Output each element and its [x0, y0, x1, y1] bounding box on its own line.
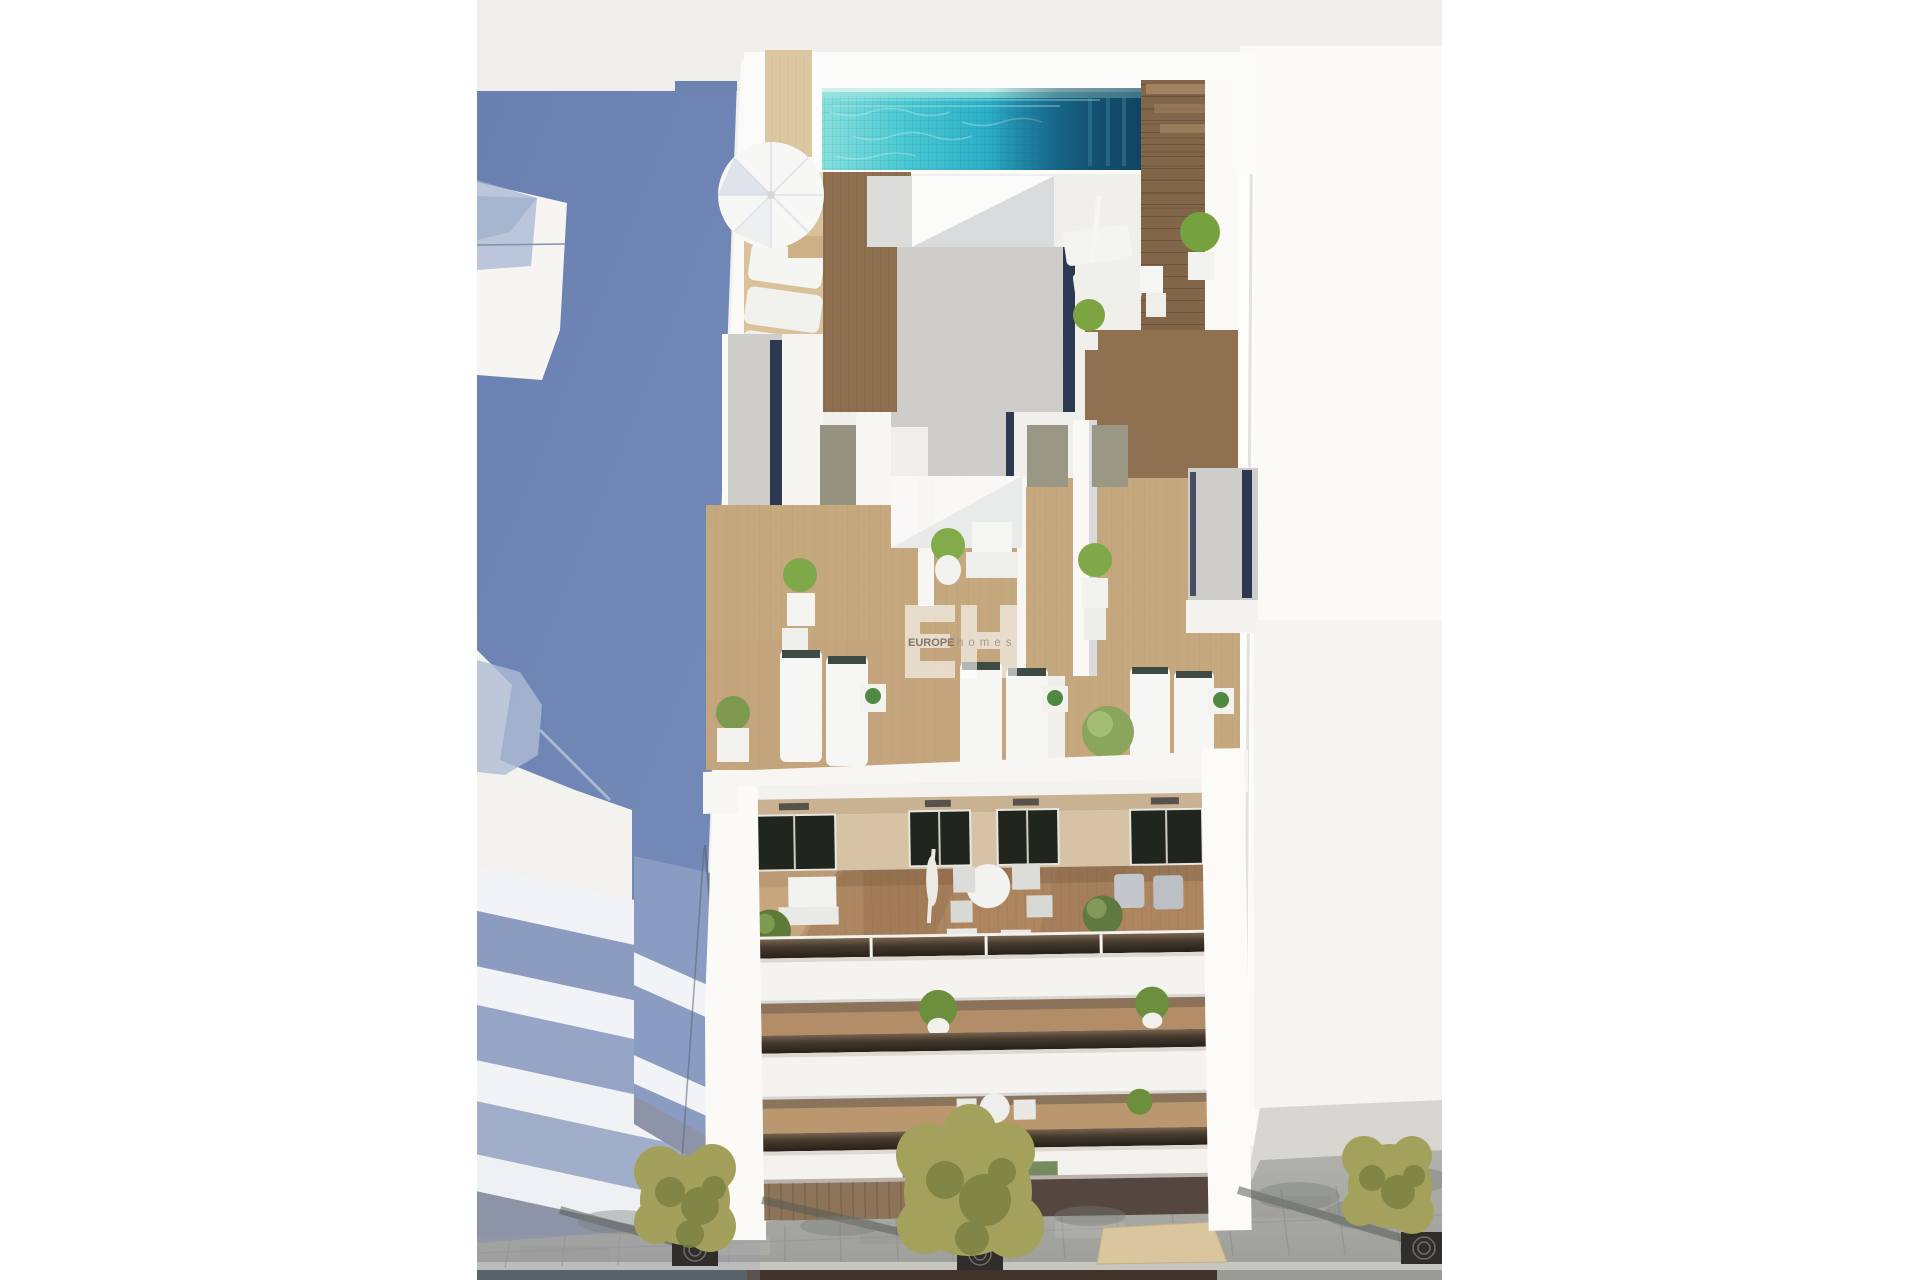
svg-text:homes: homes — [957, 637, 1017, 649]
svg-text:EUROPE: EUROPE — [908, 637, 954, 649]
